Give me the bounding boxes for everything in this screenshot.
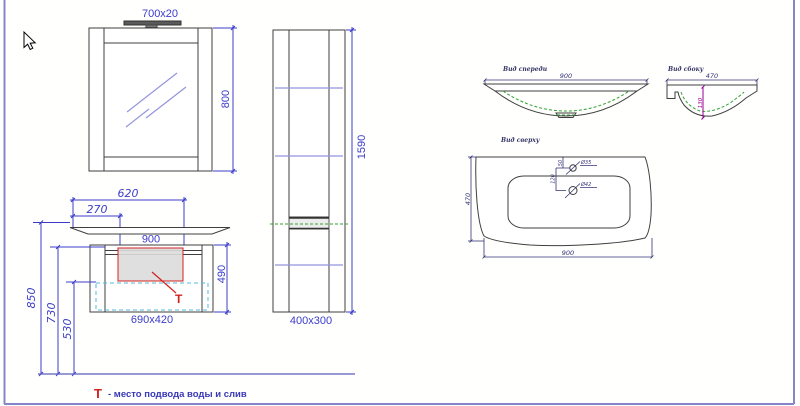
mirror-cabinet-drawing: 700x20 800 (89, 8, 237, 174)
vanity-900-label: 900 (142, 234, 160, 246)
mirror-outline (89, 28, 212, 171)
legend-text: - место подвода воды и слив (108, 389, 247, 400)
mirror-height-dimension: 800 (213, 25, 237, 174)
side-view-depth-label: 130 (698, 97, 704, 108)
vanity-drawing: 620 270 900 T 490 (70, 187, 231, 326)
tall-cabinet-height-label: 1590 (356, 135, 368, 159)
front-view-width-dimension: 900 (484, 72, 649, 84)
basin-side-view: Вид сбоку 470 130 (666, 66, 759, 120)
vanity-footprint-label: 690x420 (131, 314, 173, 326)
vanity-620-label: 620 (118, 187, 139, 200)
front-view-label: Вид спереди (502, 66, 548, 73)
legend-t-marker: T (94, 386, 102, 401)
front-view-slab (484, 84, 648, 91)
top-view-depth-label: 470 (464, 193, 472, 205)
side-view-width-label: 470 (706, 72, 718, 80)
dim-530-label: 530 (61, 319, 74, 340)
dim-120-label: 120 (551, 174, 557, 184)
side-view-profile (667, 85, 757, 116)
legend: T - место подвода воды и слив (94, 386, 247, 401)
dim-50-label: 50 (558, 160, 564, 166)
tall-cabinet-drawing: 1590 400x300 (270, 27, 368, 327)
vanity-490-label: 490 (216, 265, 228, 283)
front-view-bowl (495, 91, 637, 116)
vanity-height-dimension: 490 (214, 242, 231, 315)
dim-730-label: 730 (45, 303, 58, 324)
vanity-top-dimensions: 620 270 (70, 187, 187, 248)
drain-hole-label: Ø42 (580, 181, 591, 188)
vanity-270-label: 270 (87, 203, 108, 216)
tall-cabinet-footprint-label: 400x300 (290, 315, 332, 327)
top-view-width-label: 900 (562, 249, 574, 257)
tall-cabinet-outline (273, 30, 345, 312)
basin-front-view: Вид спереди 900 (484, 66, 649, 118)
basin-top-view: Вид сверху Ø35 Ø42 50 120 (464, 137, 654, 259)
mirror-height-label: 800 (220, 90, 232, 108)
side-view-width-dimension: 470 (666, 72, 759, 85)
mouse-cursor-icon (24, 32, 35, 50)
top-view-outline (476, 157, 651, 246)
top-view-label: Вид сверху (500, 137, 540, 144)
vanity-t-marker: T (175, 292, 183, 306)
lamp-dimension-label: 700x20 (142, 8, 178, 20)
tall-cabinet-height-dimension: 1590 (346, 27, 368, 315)
dim-850-label: 850 (25, 288, 38, 309)
side-view-label: Вид сбоку (667, 66, 704, 73)
drawing-page: 700x20 800 (0, 0, 800, 406)
front-view-width-label: 900 (560, 72, 572, 80)
faucet-hole-label: Ø35 (580, 159, 591, 166)
